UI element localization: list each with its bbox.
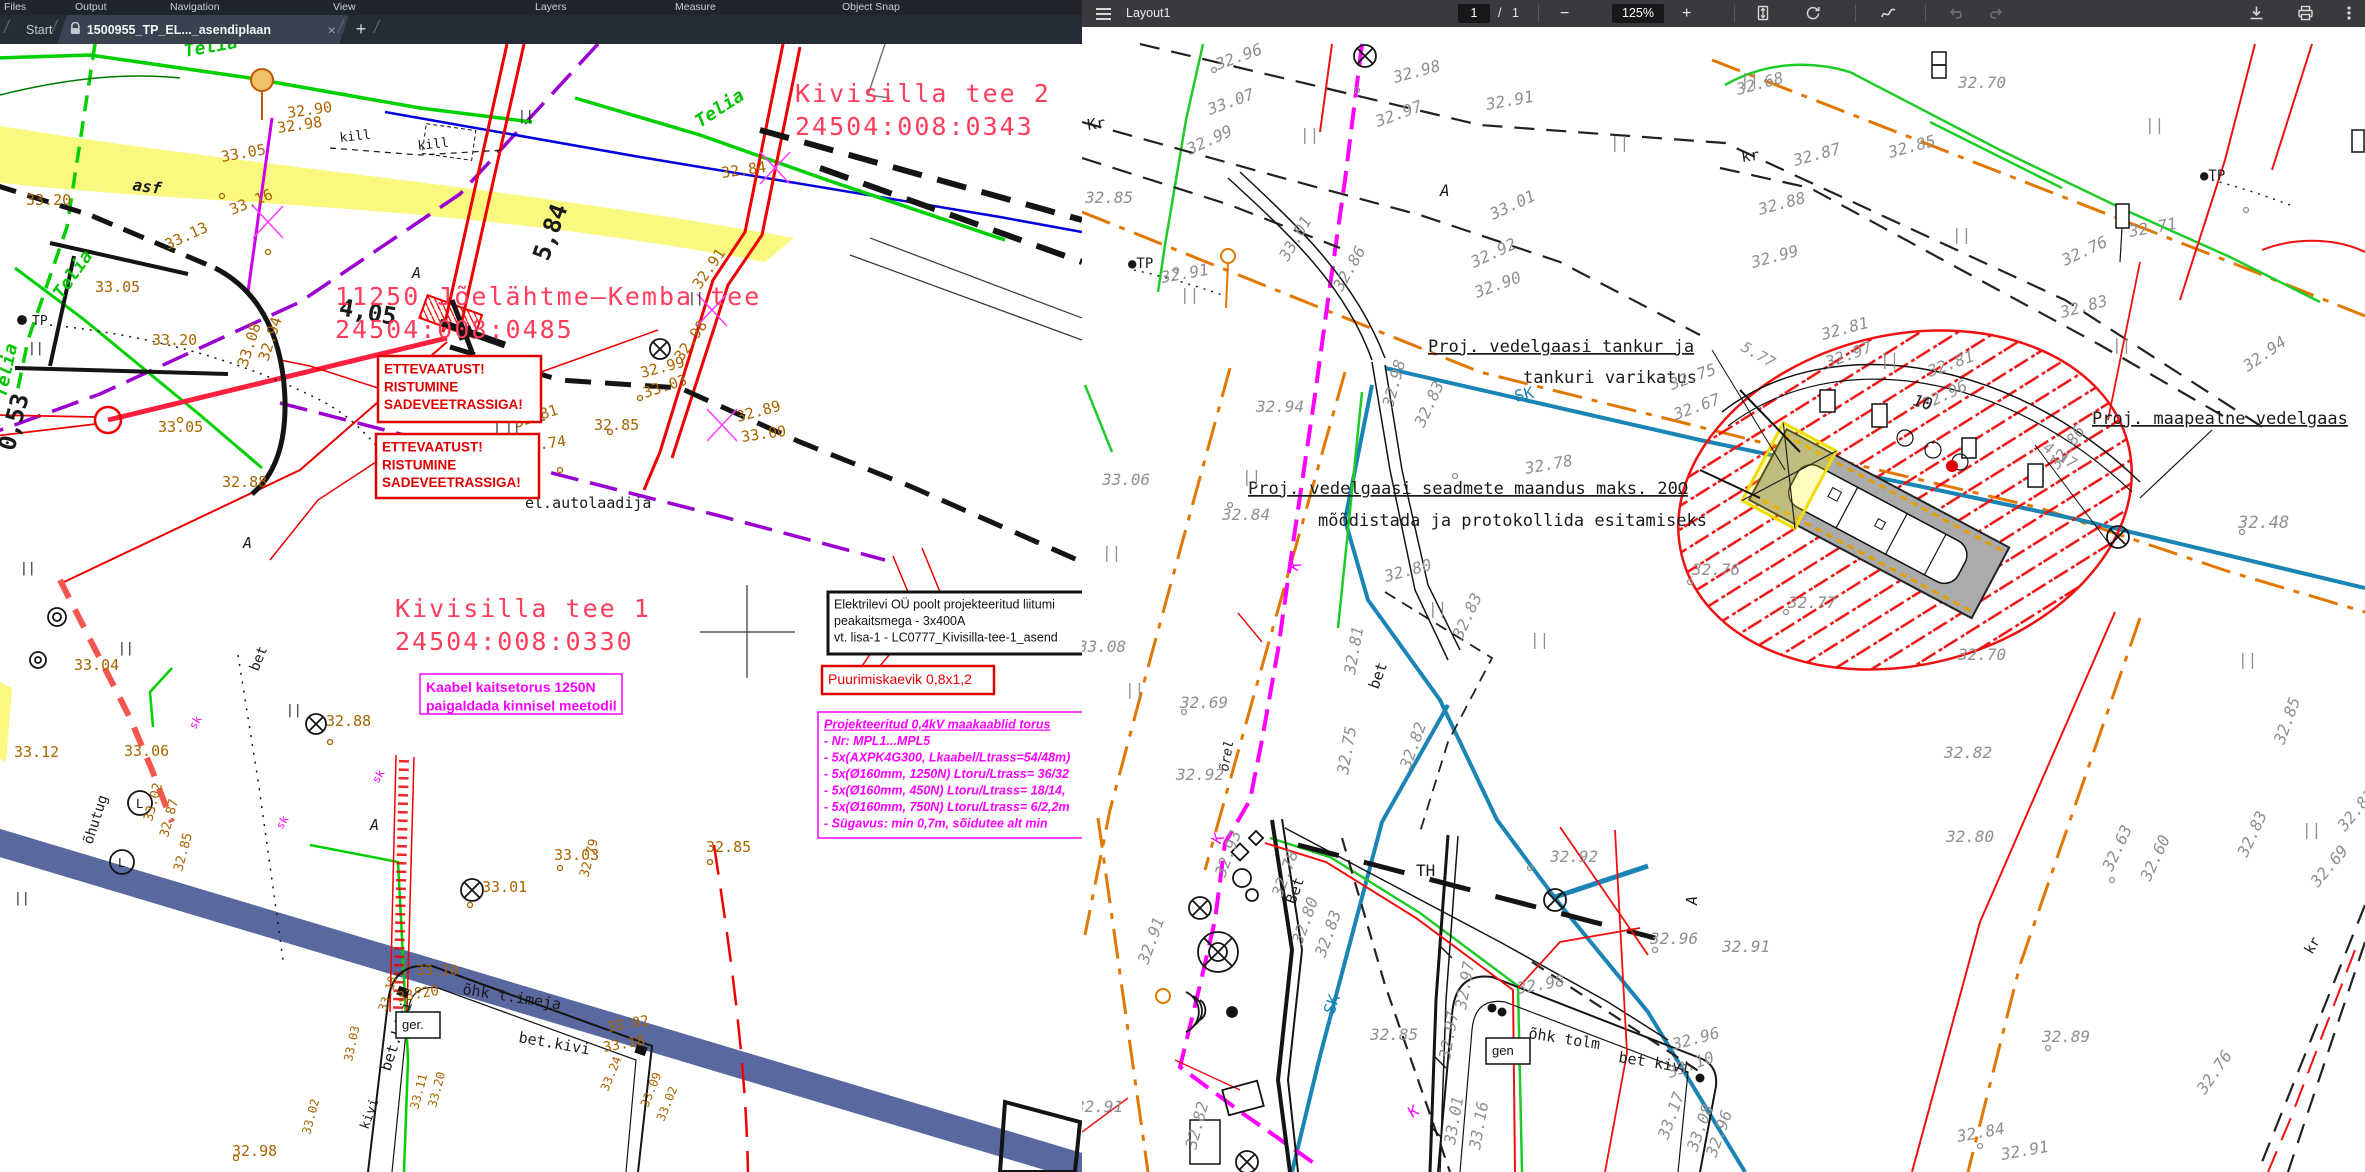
draw-ink-icon[interactable] <box>1880 0 1897 27</box>
elevation-label: sk <box>187 713 205 731</box>
elevation-label: 32.96 <box>1212 39 1265 74</box>
elevation-label: 32.77 <box>1787 593 1837 612</box>
screenshot-root: FilesOutputNavigationViewLayersMeasureOb… <box>0 0 2365 1172</box>
telia-line-label: Telia <box>0 342 22 400</box>
elevation-label: || <box>20 561 36 576</box>
elevation-label: õhutug <box>81 793 112 846</box>
elevation-label: 32.98 <box>232 1142 277 1160</box>
elevation-label: 32.85 <box>171 831 196 873</box>
elevation-label: 32.91 <box>1082 1097 1123 1116</box>
elevation-label: 33.07 <box>1204 84 1257 119</box>
elevation-label: 32.98 <box>276 113 323 137</box>
elevation-label: 32.70 <box>1957 645 2006 664</box>
elevation-label: 32.88 <box>1755 188 1807 219</box>
elevation-label: 33.00 <box>740 422 787 446</box>
elevation-label: 32.89 <box>2041 1027 2090 1046</box>
note-box-line: RISTUMINE <box>384 379 458 394</box>
elevation-label: 5.77 <box>1738 338 1778 372</box>
menu-item-view[interactable]: View <box>333 0 356 15</box>
elevation-label: A <box>242 534 252 552</box>
elevation-label: 32.97 <box>1435 1010 1462 1062</box>
elevation-label: 32.85 <box>1084 188 1133 207</box>
elevation-label: bet.kivi <box>517 1028 591 1058</box>
elevation-label: kivi <box>358 1097 383 1132</box>
elevation-label: 32.76 <box>2058 232 2111 270</box>
elevation-label: bet <box>247 644 271 673</box>
redo-icon <box>1988 0 2004 27</box>
elevation-label: 32.98 <box>1514 971 1566 998</box>
elevation-label: 32.80 <box>1945 827 1994 846</box>
elevation-label: kr <box>1740 146 1760 166</box>
elevation-label: 32.94 <box>1255 397 1304 416</box>
elevation-label: 33.20 <box>152 331 197 349</box>
rotate-icon[interactable] <box>1805 0 1821 27</box>
elevation-label: || <box>2302 820 2321 839</box>
tab-separator: / <box>374 17 379 38</box>
elevation-label: 32.82 <box>1181 1100 1212 1152</box>
cadastral-number: 24504:008:0485 <box>335 315 574 344</box>
elevation-label: || <box>2112 335 2131 354</box>
elevation-label: kill <box>417 136 450 154</box>
elevation-label: TH <box>1416 861 1435 880</box>
note-box-line: gen <box>1492 1043 1514 1058</box>
elevation-label: 32.97 <box>1372 96 1425 131</box>
elevation-label: K <box>1405 1101 1422 1121</box>
elevation-label: 32.90 <box>1471 267 1524 302</box>
pdf-toolbar: Layout1 1 / 1 − 125% + <box>1082 0 2365 28</box>
note-box-line: vt. lisa-1 - LC0777_Kivisilla-tee-1_asen… <box>834 631 1058 645</box>
elevation-label: || <box>28 341 44 356</box>
elevation-label: || <box>1180 285 1199 304</box>
elevation-label: A <box>411 264 421 282</box>
elevation-label: 32.75 <box>1666 359 1719 394</box>
tab-start-label: Start <box>26 23 52 37</box>
elevation-label: 33.06 <box>124 742 169 760</box>
note-box-line: SADEVEETRASSIGA! <box>382 475 521 490</box>
telia-line-label: Telia <box>182 44 239 62</box>
toolbar-separator <box>1925 5 1926 22</box>
menu-item-object-snap[interactable]: Object Snap <box>842 0 900 15</box>
elevation-label: asf <box>131 175 163 198</box>
elevation-label: 32.84 <box>720 158 767 182</box>
zoom-level-select[interactable]: 125% <box>1612 4 1664 23</box>
note-box-line: - 5x(AXPK4G300, Lkaabel/Ltrass=54/48m) <box>824 751 1070 765</box>
elevation-label: kill <box>339 128 372 146</box>
elevation-label: 32.97 <box>1451 960 1478 1012</box>
menu-item-measure[interactable]: Measure <box>675 0 716 15</box>
elevation-label: el.autolaadija <box>525 494 651 512</box>
cadastral-number: 24504:008:0343 <box>795 112 1034 141</box>
elevation-label: || <box>1300 125 1319 144</box>
svg-text:L: L <box>118 856 125 870</box>
elevation-label: 32.84 <box>1221 505 1270 524</box>
elevation-label: || <box>688 291 704 306</box>
zoom-out-button[interactable]: − <box>1560 0 1569 27</box>
elevation-label: 33.03 <box>341 1024 362 1062</box>
elevation-label: SK <box>1320 992 1344 1017</box>
cadastral-number: 24504:008:0330 <box>395 627 634 656</box>
elevation-label: 32.75 <box>1333 725 1360 777</box>
black-road-edges <box>1228 172 1716 1172</box>
page-separator: / <box>1498 0 1501 27</box>
large-manhole <box>1198 932 1238 972</box>
elevation-label: A <box>369 816 379 834</box>
elevation-label: 32.96 <box>1669 1023 1721 1054</box>
cad-window: FilesOutputNavigationViewLayersMeasureOb… <box>0 0 1082 1172</box>
elevation-label: 33.10 <box>416 963 458 979</box>
elevation-label: || <box>1242 467 1261 486</box>
site-plan-right: 32.9633.0732.9832.9732.91Kr32.9932.85A33… <box>1082 27 2365 1172</box>
menu-item-output[interactable]: Output <box>75 0 107 15</box>
elevation-label: 33.05 <box>220 140 268 166</box>
elevation-label: 32.91 <box>1998 1137 2050 1164</box>
elevation-label: 32.81 <box>1340 625 1367 677</box>
note-box-line: RISTUMINE <box>382 457 456 472</box>
elevation-label: 32.83 <box>1448 590 1486 643</box>
elevation-label: 32.71 <box>2126 214 2178 241</box>
elevation-label: || <box>1125 680 1144 699</box>
elevation-label: A <box>1683 896 1701 906</box>
note-box-line: ger. <box>402 1017 424 1032</box>
note-box-line: peakaitsmega - 3x400A <box>834 614 966 628</box>
elevation-label: || <box>2145 115 2164 134</box>
elevation-label: 32.69 <box>1179 693 1228 712</box>
elevation-label: 32.98 <box>1390 56 1442 87</box>
elevation-label: || <box>1740 70 1759 89</box>
elevation-label: A <box>1439 181 1450 200</box>
elevation-label: 33.01 <box>1486 186 1539 224</box>
elevation-label: 32.98 <box>1378 358 1409 410</box>
elevation-label: õhk tolm <box>1527 1024 1601 1053</box>
elevation-label: 32.76 <box>2192 1047 2236 1098</box>
elevation-label: 33.16 <box>1465 1100 1492 1152</box>
pdf-window: Layout1 1 / 1 − 125% + <box>1082 0 2365 1172</box>
elevation-label: 32.91 <box>1483 87 1535 114</box>
tab-separator: / <box>52 17 57 38</box>
elevation-label: 32.85 <box>1369 1025 1418 1044</box>
annotation: Proj. vedelgaasi seadmete maandus maks. … <box>1248 479 1688 499</box>
note-box: gen <box>1486 1038 1530 1064</box>
elevation-label: 33.24 <box>598 1054 625 1093</box>
elevation-label: 33.01 <box>482 878 527 896</box>
tab-separator: / <box>4 17 9 38</box>
elevation-label: 32.88 <box>222 473 267 491</box>
tab-title: 1500955_TP_EL..._asendiplaan <box>87 23 271 37</box>
elevation-label: 32.92 <box>1549 847 1598 866</box>
note-box-line: Elektrilevi OÜ poolt projekteeritud liit… <box>834 598 1055 612</box>
elevation-label: bet <box>1365 660 1391 692</box>
note-box-line: - Sügavus: min 0,7m, sõidutee alt min <box>824 817 1048 831</box>
elevation-label: 32.83 <box>2233 808 2271 861</box>
elevation-label: sk <box>370 767 388 785</box>
elevation-label: kr <box>2302 934 2324 957</box>
annotation: Proj. maapealne vedelgaas <box>2092 409 2348 429</box>
elevation-label: 32.80 <box>1381 555 1433 586</box>
note-box: Elektrilevi OÜ poolt projekteeritud liit… <box>828 592 1082 654</box>
elevation-label: ●TP <box>1128 256 1153 272</box>
street-label: Kivisilla tee 2 <box>795 79 1051 108</box>
elevation-label: 32.81 <box>2333 785 2365 835</box>
note-box-line: Puurimiskaevik 0,8x1,2 <box>828 671 972 687</box>
elevation-label: || <box>1952 225 1971 244</box>
warning-box: ETTEVAATUST!RISTUMINESADEVEETRASSIGA! <box>378 356 541 422</box>
elevation-label: 33.20 <box>26 191 71 209</box>
elevation-label: 32.85 <box>594 416 639 434</box>
elevation-label: || <box>1880 350 1899 369</box>
annotation: mõõdistada ja protokollida esitamiseks <box>1318 511 1707 531</box>
elevation-label: ●TP <box>2200 168 2225 184</box>
elevation-label: 32.88 <box>326 712 371 730</box>
elevation-label: 0,53 <box>0 390 35 453</box>
elevation-label: sk <box>274 813 292 831</box>
note-box-line: - Nr: MPL1...MPL5 <box>824 734 931 748</box>
elevation-label: 32.63 <box>2098 822 2136 875</box>
elevation-label: 32.85 <box>2270 695 2305 748</box>
cad-drawing-canvas[interactable]: L L TeliaTeliaTeliaT <box>0 44 1082 1172</box>
elevation-label: 33.02 <box>299 1097 322 1136</box>
elevation-label: || <box>2238 650 2257 669</box>
elevation-label: 32.84 <box>1954 1119 2006 1146</box>
kebab-menu-icon[interactable] <box>2346 0 2352 27</box>
print-icon[interactable] <box>2297 0 2314 27</box>
street-label: Kivisilla tee 1 <box>395 594 651 623</box>
elevation-label: 33.04 <box>74 656 119 674</box>
elevation-label: || <box>518 109 534 124</box>
elevation-label: 32.48 <box>2237 513 2289 533</box>
telia-line-label: Telia <box>691 85 748 132</box>
elevation-label: || <box>1610 133 1629 152</box>
menu-item-layers[interactable]: Layers <box>535 0 567 15</box>
elevation-label: 32.99 <box>1183 121 1236 159</box>
elevation-label: 32.91 <box>1134 915 1169 968</box>
tab-separator: / <box>338 17 343 38</box>
toolbar-separator <box>1538 5 1539 22</box>
site-plan-left: L L TeliaTeliaTeliaT <box>0 44 1082 1172</box>
green-lines-right <box>1085 44 2320 1172</box>
elevation-label: || <box>118 641 134 656</box>
note-box-line: ETTEVAATUST! <box>382 440 483 455</box>
elevation-label: TP <box>32 314 48 329</box>
lock-icon <box>70 22 81 38</box>
left-plan-boxes: ETTEVAATUST!RISTUMINESADEVEETRASSIGA!ETT… <box>376 356 1082 1038</box>
note-box: ger. <box>396 1012 440 1038</box>
elevation-label: 32.99 <box>1748 241 1800 272</box>
menu-item-navigation[interactable]: Navigation <box>170 0 220 15</box>
undo-icon <box>1948 0 1964 27</box>
fit-page-icon[interactable] <box>1755 0 1771 27</box>
note-box-line: - 5x(Ø160mm, 1250N) Ltoru/Ltrass= 36/32 <box>824 767 1069 781</box>
note-box: Kaabel kaitsetorus 1250Npaigaldada kinni… <box>420 674 622 714</box>
new-tab-button[interactable]: + <box>350 18 372 40</box>
elevation-label: || <box>1428 599 1447 618</box>
elevation-label: 32.85 <box>706 838 751 856</box>
page-total: 1 <box>1512 0 1519 27</box>
elevation-label: 32.67 <box>1670 389 1723 424</box>
tab-active-document[interactable]: 1500955_TP_EL..._asendiplaan × <box>57 15 348 44</box>
cad-menu-bar: FilesOutputNavigationViewLayersMeasureOb… <box>0 0 1082 15</box>
elevation-label: 32.70 <box>1957 73 2006 92</box>
elevation-label: 32.83 <box>1410 378 1448 431</box>
elevation-label: || <box>1530 630 1549 649</box>
elevation-label: 32.60 <box>2136 832 2174 885</box>
toolbar-separator <box>1855 5 1856 22</box>
cable-spec-box: Projekteeritud 0,4kV maakaablid torus- N… <box>818 712 1082 838</box>
warning-box: ETTEVAATUST!RISTUMINESADEVEETRASSIGA! <box>376 434 539 498</box>
pdf-page-canvas[interactable]: 32.9633.0732.9832.9732.91Kr32.9932.85A33… <box>1082 27 2365 1172</box>
trolley-symbol <box>251 69 273 120</box>
elevation-label: || <box>14 891 30 906</box>
elevation-label: 33.08 <box>1082 637 1126 656</box>
elevation-label: 33.05 <box>158 418 203 436</box>
page-input[interactable]: 1 <box>1458 4 1490 23</box>
zoom-in-button[interactable]: + <box>1682 0 1691 27</box>
note-box-line: - 5x(Ø160mm, 750N) Ltoru/Ltrass= 6/2,2m <box>824 800 1070 814</box>
svg-text:L: L <box>136 797 143 811</box>
note-box-line: - 5x(Ø160mm, 450N) Ltoru/Ltrass= 18/14, <box>824 784 1065 798</box>
close-tab-icon[interactable]: × <box>328 22 336 38</box>
elevation-label: 32.92 <box>1175 765 1224 784</box>
elevation-label: || <box>286 703 302 718</box>
annotation: Proj. vedelgaasi tankur ja <box>1428 337 1694 357</box>
note-box-line: SADEVEETRASSIGA! <box>384 397 523 412</box>
menu-item-files[interactable]: Files <box>4 0 26 15</box>
elevation-label: 32.85 <box>1885 131 1937 162</box>
elevation-label: 32.87 <box>1790 139 1843 170</box>
note-box-line: ETTEVAATUST! <box>384 362 485 377</box>
elevation-label: 32.78 <box>1522 451 1574 478</box>
elevation-label: 33.06 <box>1101 470 1150 489</box>
pdf-title: Layout1 <box>1126 0 1170 27</box>
elevation-label: 33.05 <box>95 278 140 296</box>
elevation-label: 33.12 <box>14 743 59 761</box>
elevation-label: 32.69 <box>2306 841 2352 891</box>
note-box: Puurimiskaevik 0,8x1,2 <box>822 666 994 694</box>
elevation-label: 32.83 <box>2057 291 2109 322</box>
right-plan-boxes: gen <box>1486 1038 1530 1064</box>
note-box-line: Projekteeritud 0,4kV maakaablid torus <box>824 718 1051 732</box>
elevation-label: 33.13 <box>162 218 211 253</box>
elevation-label: 32.91 <box>1721 937 1770 956</box>
note-box-line: paigaldada kinnisel meetodil <box>426 697 617 713</box>
elevation-label: || <box>1102 543 1121 562</box>
elevation-label: 32.96 <box>1649 929 1698 948</box>
elevation-label: 32.82 <box>1943 743 1992 762</box>
download-icon[interactable] <box>2248 0 2265 27</box>
toolbar-separator <box>1734 5 1735 22</box>
elevation-label: 32.94 <box>2239 332 2290 376</box>
elevation-label: Kr <box>1086 114 1106 134</box>
elevation-label: 32.76 <box>1691 560 1740 579</box>
elevation-label: 32.91 <box>1158 260 1210 287</box>
note-box-line: Kaabel kaitsetorus 1250N <box>426 679 596 695</box>
cad-tab-bar: / Start / 1500955_TP_EL..._asendiplaan ×… <box>0 15 1082 44</box>
